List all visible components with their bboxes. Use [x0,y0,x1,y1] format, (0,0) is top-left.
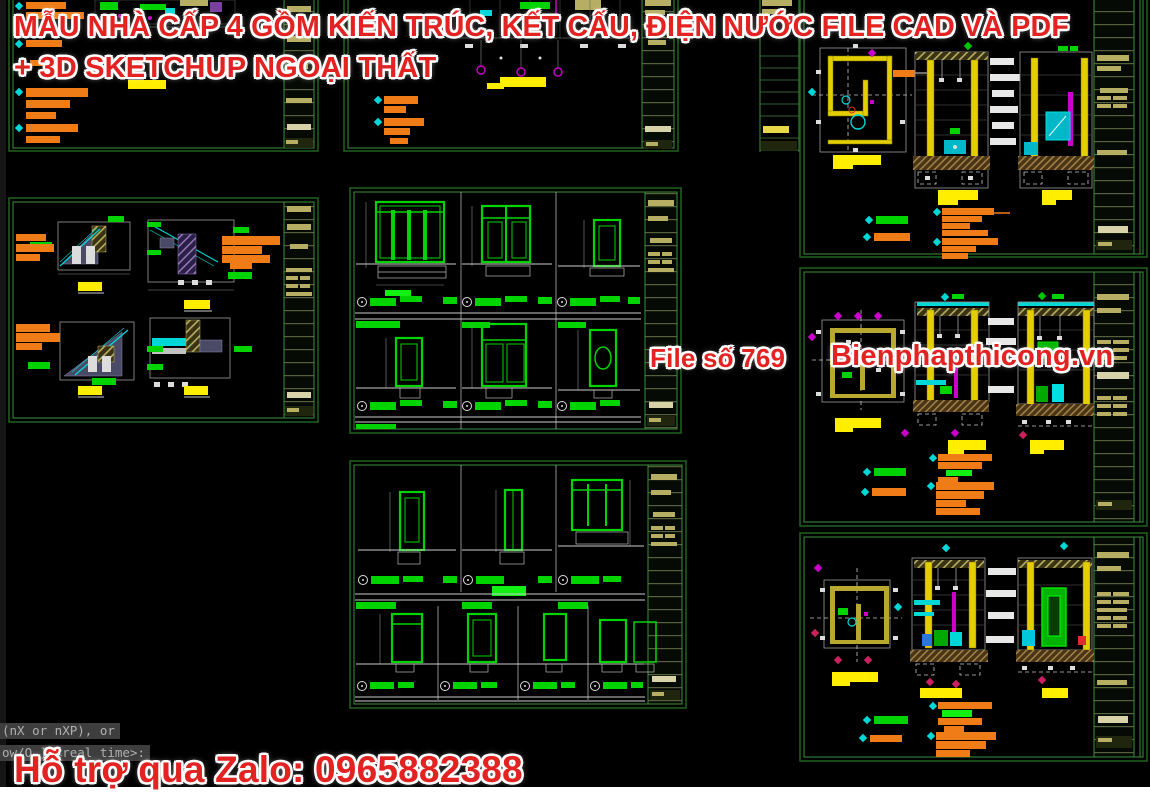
label-band-row2 [355,682,645,702]
rebar-callouts [990,58,1020,145]
sheet-tank-details-2[interactable] [800,268,1147,526]
note-bars [861,454,994,515]
note-bars [863,208,1010,259]
tank-plan-view [808,44,928,169]
watermark-website: Bienphapthicong.vn [831,340,1113,373]
door-elevation-row1 [358,480,644,564]
title-block-strip [645,192,677,429]
tank-section-a [913,42,990,205]
watermark-title-line2: + 3D SKETCHUP NGOẠI THẤT [14,52,436,85]
command-history-line: (nX or nXP), or [0,723,120,739]
markers-and-titles [901,429,1064,454]
title-block-strip [284,202,314,418]
tank-section-b [1016,542,1094,672]
door-elevation-row1 [356,202,640,285]
sheet-door-schedule-1[interactable] [350,188,681,433]
title-block-strip [1094,272,1140,522]
tank-plan-view [810,564,902,686]
window-edge [0,0,6,787]
watermark-title-line1: MẪU NHÀ CẤP 4 GỒM KIẾN TRÚC, KẾT CẤU, ĐI… [14,11,1069,44]
detail-wall-section [147,318,252,397]
rebar-callouts [986,568,1016,643]
label-band-row1 [355,290,641,328]
autocad-model-space: (nX or nXP), or ow/O ] <real time>: MẪU … [0,0,1150,803]
watermark-zalo-support: Hỗ trợ qua Zalo: 0965882388 [14,749,523,791]
detail-gable [16,322,134,397]
label-band-row1 [355,576,645,610]
note-bars-left [374,96,424,144]
sheet-tank-details-3[interactable] [800,533,1147,761]
markers-and-titles [920,676,1068,698]
door-elevation-row2 [356,324,640,398]
watermark-file-number: File số 769 [650,343,785,374]
label-band-row2 [355,400,641,429]
detail-eave-1 [16,216,130,293]
title-block-strip [648,465,682,704]
door-elevation-row2 [356,614,656,672]
detail-eave-2 [147,220,280,311]
title-block-strip [1094,537,1140,757]
tank-section-a [910,544,988,675]
sheet-roof-details[interactable] [9,198,318,422]
note-bars [859,702,996,757]
tank-section-b [1018,46,1094,205]
cad-canvas[interactable] [0,0,1150,803]
sheet-door-schedule-2[interactable] [350,461,686,708]
title-block-strip [1094,0,1140,254]
